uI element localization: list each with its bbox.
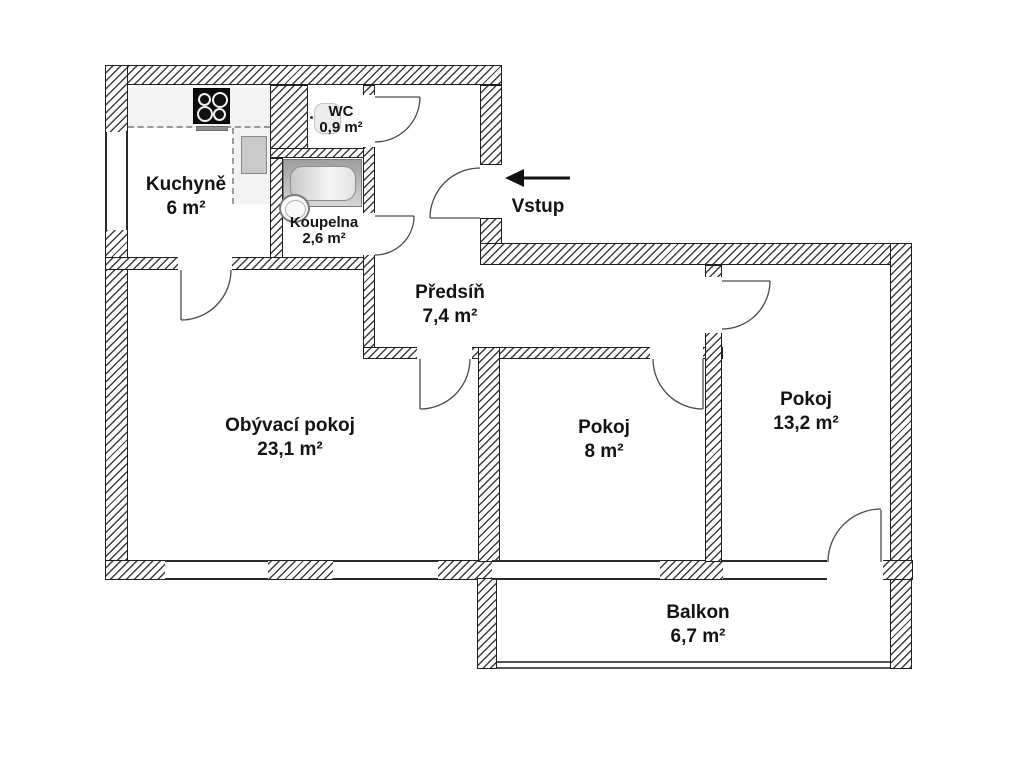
window-living-1 bbox=[165, 560, 268, 580]
opening-entrance-door bbox=[479, 165, 503, 218]
wall-living-pokoj8 bbox=[478, 347, 500, 562]
room-label-wc: WC 0,9 m² bbox=[319, 104, 362, 136]
door-arc-living bbox=[420, 359, 470, 409]
door-arc-entrance bbox=[430, 168, 480, 218]
wall-entry-upper bbox=[480, 85, 502, 165]
room-label-kuchyne: Kuchyně 6 m² bbox=[146, 173, 226, 221]
wall-exterior-right bbox=[890, 243, 912, 669]
door-arc-pokoj13 bbox=[722, 281, 770, 329]
room-label-balkon: Balkon 6,7 m² bbox=[666, 601, 729, 649]
room-name: Předsíň bbox=[415, 282, 485, 303]
stove-handle-icon bbox=[196, 126, 228, 131]
entrance-label: Vstup bbox=[512, 195, 565, 219]
opening-living-door bbox=[417, 345, 472, 361]
room-name: WC bbox=[328, 103, 353, 120]
opening-kitchen-door bbox=[178, 255, 232, 272]
room-label-koupelna: Koupelna 2,6 m² bbox=[290, 215, 358, 247]
opening-wc-door bbox=[362, 95, 376, 147]
wall-kitchen-bottom bbox=[105, 257, 375, 270]
room-name: Balkon bbox=[666, 602, 729, 623]
room-area: 8 m² bbox=[578, 440, 630, 464]
stove-icon bbox=[193, 88, 230, 124]
opening-pokoj13-door bbox=[704, 277, 723, 333]
room-label-predsin: Předsíň 7,4 m² bbox=[415, 281, 485, 329]
room-area: 0,9 m² bbox=[319, 120, 362, 136]
door-arc-pokoj8 bbox=[653, 359, 703, 409]
window-living-2 bbox=[333, 560, 438, 580]
door-arc-wc bbox=[375, 97, 420, 142]
window-pokoj13 bbox=[723, 560, 827, 580]
wall-exterior-top bbox=[105, 65, 502, 85]
toilet-dot-icon bbox=[310, 116, 313, 119]
room-area: 23,1 m² bbox=[225, 438, 355, 462]
room-label-pokoj-8: Pokoj 8 m² bbox=[578, 416, 630, 464]
room-label-pokoj-13: Pokoj 13,2 m² bbox=[773, 388, 838, 436]
door-arc-kitchen bbox=[181, 270, 231, 320]
room-area: 7,4 m² bbox=[415, 305, 485, 329]
opening-balcony-door bbox=[827, 558, 883, 582]
room-name: Kuchyně bbox=[146, 174, 226, 195]
window-kitchen-left bbox=[105, 132, 128, 230]
wall-exterior-top-right bbox=[480, 243, 912, 265]
door-arc-bath bbox=[375, 216, 414, 255]
room-name: Pokoj bbox=[578, 417, 630, 438]
wall-wc-bottom bbox=[270, 148, 375, 158]
room-label-obyvaci-pokoj: Obývací pokoj 23,1 m² bbox=[225, 414, 355, 462]
room-name: Koupelna bbox=[290, 214, 358, 231]
floorplan-canvas: Kuchyně 6 m² WC 0,9 m² Koupelna 2,6 m² P… bbox=[0, 0, 1024, 768]
opening-bath-door bbox=[362, 213, 376, 255]
balcony-railing bbox=[497, 661, 890, 669]
door-arc-balcony bbox=[828, 509, 881, 562]
entrance-arrow-icon bbox=[505, 169, 570, 187]
room-area: 6,7 m² bbox=[666, 625, 729, 649]
room-area: 13,2 m² bbox=[773, 412, 838, 436]
room-area: 2,6 m² bbox=[290, 231, 358, 247]
wall-balcony-left bbox=[477, 578, 497, 669]
room-area: 6 m² bbox=[146, 197, 226, 221]
window-pokoj8 bbox=[492, 560, 660, 580]
fridge-icon bbox=[241, 136, 267, 174]
room-name: Obývací pokoj bbox=[225, 415, 355, 436]
opening-pokoj8-door bbox=[650, 345, 703, 361]
room-name: Pokoj bbox=[780, 389, 832, 410]
wall-entry-lower bbox=[480, 218, 502, 246]
